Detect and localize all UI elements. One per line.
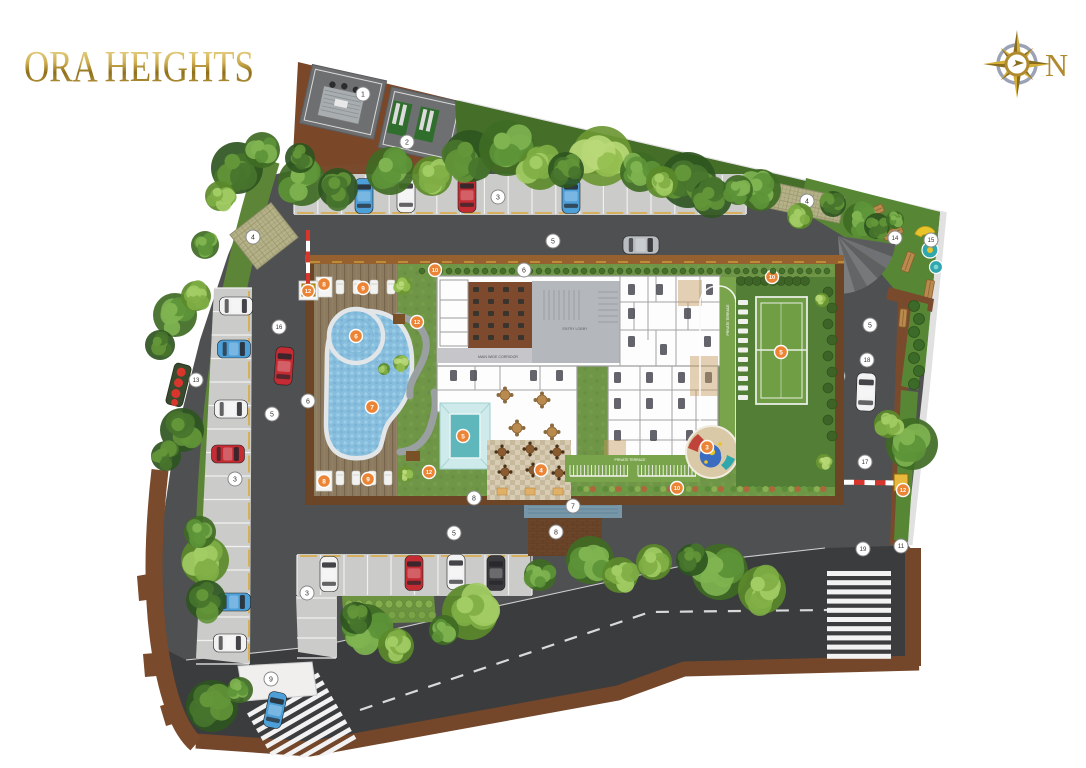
svg-text:ORA HEIGHTS: ORA HEIGHTS [24,42,254,91]
svg-text:7: 7 [370,404,374,411]
svg-text:MAIN WIDE CORRIDOR: MAIN WIDE CORRIDOR [478,355,518,359]
svg-text:9: 9 [366,476,370,483]
svg-text:16: 16 [276,325,283,331]
svg-text:PRIVATE TERRACE: PRIVATE TERRACE [614,458,646,462]
svg-text:15: 15 [928,238,935,244]
svg-text:7: 7 [571,504,575,511]
svg-text:6: 6 [354,333,358,340]
svg-text:10: 10 [769,275,775,281]
svg-text:10: 10 [432,268,438,274]
svg-text:18: 18 [864,358,871,364]
svg-text:12: 12 [426,470,432,476]
svg-text:5: 5 [868,323,872,330]
svg-text:3: 3 [305,591,309,598]
svg-text:4: 4 [539,467,543,474]
svg-text:1: 1 [361,92,365,99]
svg-text:ENTRY LOBBY: ENTRY LOBBY [562,327,588,331]
svg-text:17: 17 [862,460,869,466]
svg-text:6: 6 [522,268,526,275]
svg-text:9: 9 [361,285,365,292]
svg-text:9: 9 [269,677,273,684]
svg-text:5: 5 [452,531,456,538]
svg-text:13: 13 [193,378,200,384]
svg-text:5: 5 [551,239,555,246]
svg-text:14: 14 [892,236,899,242]
svg-text:12: 12 [414,320,420,326]
svg-text:2: 2 [405,140,409,147]
svg-text:5: 5 [779,349,783,356]
svg-text:8: 8 [322,281,326,288]
svg-text:3: 3 [233,477,237,484]
svg-text:11: 11 [898,544,905,550]
svg-text:5: 5 [270,412,274,419]
svg-text:12: 12 [900,488,906,494]
svg-text:8: 8 [472,496,476,503]
svg-text:8: 8 [554,530,558,537]
svg-text:6: 6 [306,399,310,406]
svg-text:N: N [1045,47,1068,83]
svg-text:3: 3 [705,444,709,451]
svg-text:10: 10 [674,486,680,492]
svg-text:5: 5 [461,433,465,440]
svg-text:4: 4 [251,235,255,242]
svg-text:8: 8 [322,478,326,485]
svg-text:PRIVATE TERRACE: PRIVATE TERRACE [726,304,730,336]
svg-text:19: 19 [860,547,867,553]
svg-text:3: 3 [496,195,500,202]
svg-text:12: 12 [305,289,311,295]
